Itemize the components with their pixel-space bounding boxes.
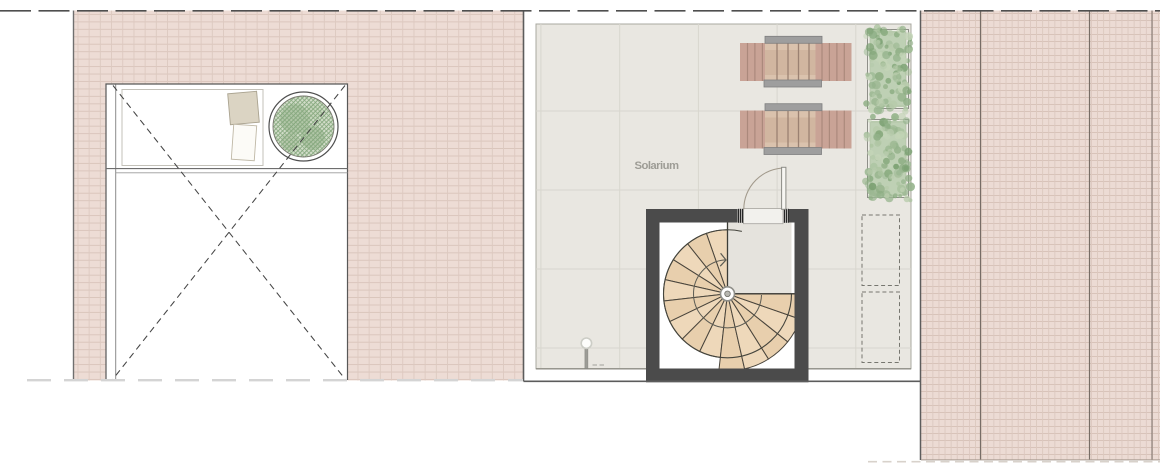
svg-text:Solarium: Solarium xyxy=(635,160,679,172)
